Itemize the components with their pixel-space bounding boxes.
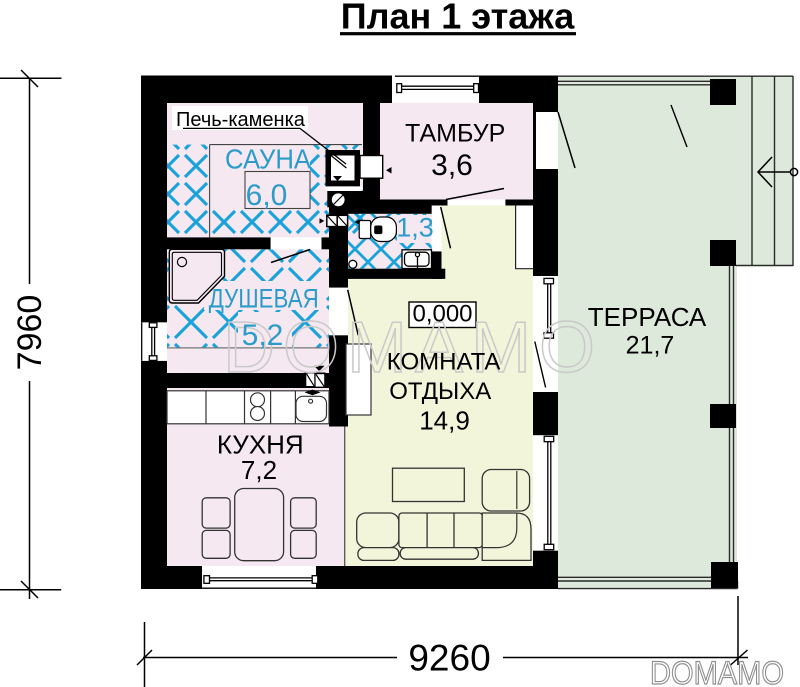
svg-text:7,2: 7,2 [241, 455, 277, 485]
svg-text:ОТДЫХА: ОТДЫХА [389, 378, 491, 405]
svg-text:ДУШЕВАЯ: ДУШЕВАЯ [209, 283, 319, 313]
svg-text:1,3: 1,3 [396, 213, 434, 243]
svg-text:План 1 этажа: План 1 этажа [341, 0, 576, 37]
svg-text:DOMAMO: DOMAMO [650, 655, 784, 687]
svg-text:САУНА: САУНА [225, 143, 311, 174]
svg-text:КОМНАТА: КОМНАТА [387, 349, 501, 376]
svg-text:9260: 9260 [408, 638, 490, 679]
svg-text:7960: 7960 [11, 295, 49, 371]
svg-text:14,9: 14,9 [419, 406, 470, 436]
svg-text:6,0: 6,0 [246, 179, 288, 212]
svg-text:5,2: 5,2 [242, 319, 284, 352]
svg-text:21,7: 21,7 [626, 332, 675, 360]
svg-text:3,6: 3,6 [431, 149, 473, 182]
svg-text:ТЕРРАСА: ТЕРРАСА [588, 302, 707, 332]
svg-text:ТАМБУР: ТАМБУР [405, 120, 505, 148]
